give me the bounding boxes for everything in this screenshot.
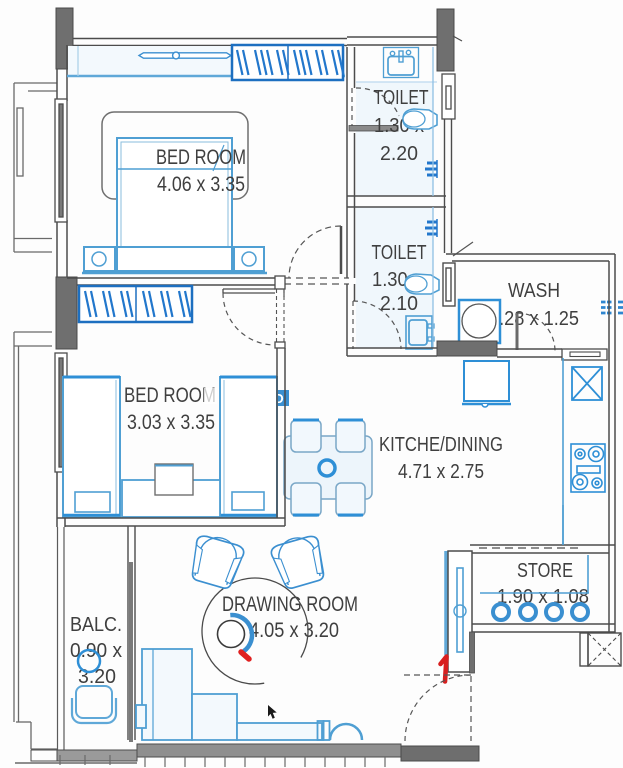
svg-text:BED ROOM: BED ROOM	[156, 146, 246, 169]
svg-text:BED ROOM: BED ROOM	[124, 384, 216, 407]
svg-text:2.10: 2.10	[380, 293, 418, 315]
svg-text:WASH: WASH	[508, 280, 560, 302]
svg-text:4.06 x 3.35: 4.06 x 3.35	[157, 173, 245, 196]
svg-text:4.71 x 2.75: 4.71 x 2.75	[398, 461, 484, 483]
svg-text:2.20: 2.20	[380, 143, 418, 165]
svg-text:3.03 x 3.35: 3.03 x 3.35	[127, 411, 215, 434]
svg-text:TOILET: TOILET	[374, 87, 429, 109]
svg-text:BALC.: BALC.	[70, 614, 122, 636]
svg-text:4.05 x 3.20: 4.05 x 3.20	[249, 619, 339, 642]
svg-text:2.28 x 1.25: 2.28 x 1.25	[489, 308, 579, 330]
svg-text:STORE: STORE	[517, 560, 573, 582]
svg-text:TOILET: TOILET	[372, 242, 427, 264]
svg-text:DRAWING ROOM: DRAWING ROOM	[222, 593, 358, 616]
svg-text:KITCHE/DINING: KITCHE/DINING	[379, 434, 503, 456]
